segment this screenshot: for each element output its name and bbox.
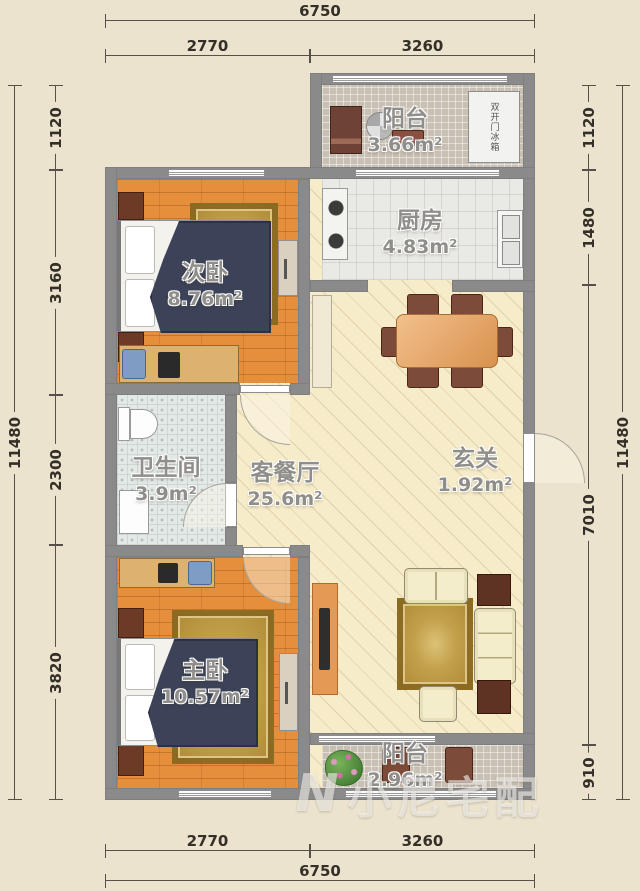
dimension-value: 3820 — [46, 647, 66, 699]
room-name: 阳台 — [382, 105, 428, 134]
dimension-left-segment: 1120 — [55, 85, 56, 170]
room-label-top-balcony: 阳台 3.66m² — [345, 100, 465, 162]
room-name: 厨房 — [397, 207, 443, 236]
room-area: 4.83m² — [383, 236, 458, 260]
sink-basin — [502, 241, 520, 265]
wardrobe-handle — [284, 259, 287, 279]
kitchen-sink — [497, 210, 523, 268]
nightstand — [118, 192, 144, 220]
dimension-value: 1480 — [579, 202, 599, 254]
window — [178, 790, 272, 798]
toilet-tank — [118, 407, 130, 441]
room-label-living-dining: 客餐厅 25.6m² — [225, 450, 345, 520]
desk-chair — [188, 561, 212, 585]
wall — [452, 280, 535, 292]
shoe-cabinet — [312, 295, 332, 388]
dimension-value: 3160 — [46, 257, 66, 309]
dimension-top-segment: 3260 — [310, 55, 535, 56]
dimension-value: 1120 — [46, 102, 66, 154]
dimension-right-segment: 1480 — [588, 170, 589, 285]
dimension-value: 910 — [579, 752, 599, 793]
refrigerator: 双开门冰箱 — [468, 91, 520, 163]
room-label-master-bedroom: 主卧 10.57m² — [150, 650, 260, 716]
sink-basin — [502, 215, 520, 239]
room-name: 玄关 — [452, 445, 498, 474]
wall — [105, 545, 243, 557]
dimension-left-overall: 11480 — [14, 85, 15, 800]
armchair — [419, 686, 457, 722]
nightstand — [118, 608, 144, 638]
nightstand — [118, 744, 144, 776]
three-seat-sofa — [474, 608, 516, 684]
living-room-rug — [397, 598, 473, 690]
wall — [290, 545, 310, 557]
two-seat-sofa — [404, 568, 468, 604]
window — [168, 169, 265, 177]
room-label-kitchen: 厨房 4.83m² — [365, 200, 475, 266]
side-table — [477, 680, 511, 714]
watermark-text: 小尼宅配 — [348, 762, 544, 826]
side-table — [477, 574, 511, 606]
room-label-second-bedroom: 次卧 8.76m² — [150, 252, 260, 318]
dimension-value: 2770 — [183, 832, 233, 850]
dimension-top-overall: 6750 — [105, 20, 535, 21]
room-name: 卫生间 — [132, 454, 201, 483]
dimension-value: 6750 — [295, 862, 345, 880]
room-label-bathroom: 卫生间 3.9m² — [112, 447, 220, 513]
dimension-top-segment: 2770 — [105, 55, 310, 56]
room-area: 8.76m² — [168, 288, 243, 312]
room-area: 1.92m² — [438, 474, 513, 498]
floor-plan-canvas: 双开门冰箱 — [0, 0, 640, 891]
room-area: 3.66m² — [368, 134, 443, 158]
dimension-right-segment: 1120 — [588, 85, 589, 170]
dimension-left-segment: 3820 — [55, 545, 56, 800]
wardrobe-handle — [285, 682, 288, 704]
master-bedroom-door — [243, 547, 290, 555]
room-name: 主卧 — [182, 657, 228, 686]
dimension-value: 7010 — [579, 489, 599, 541]
room-name: 客餐厅 — [251, 459, 320, 488]
dimension-bottom-segment: 3260 — [310, 850, 535, 851]
desk-chair — [122, 349, 146, 379]
door-swing-arc — [535, 433, 585, 483]
entry-door — [523, 433, 535, 483]
dimension-value: 2770 — [183, 37, 233, 55]
watermark: N 小尼宅配 — [295, 762, 544, 826]
master-bedroom-wardrobe — [279, 653, 298, 731]
room-area: 25.6m² — [248, 488, 323, 512]
second-bedroom-door — [240, 385, 290, 393]
laptop — [158, 352, 180, 378]
wall — [310, 73, 322, 179]
room-label-entry: 玄关 1.92m² — [430, 440, 520, 502]
wall — [290, 383, 310, 395]
dimension-right-segment: 7010 — [588, 285, 589, 745]
dimension-right-segment: 910 — [588, 745, 589, 800]
dimension-value: 11480 — [5, 411, 25, 473]
dimension-value: 2300 — [46, 444, 66, 496]
window — [332, 75, 508, 83]
refrigerator-label: 双开门冰箱 — [488, 102, 501, 152]
watermark-logo-icon: N — [290, 764, 349, 824]
room-area: 3.9m² — [135, 483, 197, 507]
dimension-value: 3260 — [398, 37, 448, 55]
dimension-value: 11480 — [613, 411, 633, 473]
dimension-left-segment: 2300 — [55, 395, 56, 545]
window — [355, 169, 500, 177]
dimension-bottom-overall: 6750 — [105, 880, 535, 881]
stove — [322, 188, 348, 260]
dimension-left-segment: 3160 — [55, 170, 56, 395]
wall — [298, 179, 310, 395]
tv — [319, 608, 330, 670]
dimension-value: 3260 — [398, 832, 448, 850]
second-bedroom-wardrobe — [278, 240, 298, 296]
dimension-value: 1120 — [579, 102, 599, 154]
wall — [310, 280, 368, 292]
dimension-right-overall: 11480 — [622, 85, 623, 800]
wall — [105, 383, 240, 395]
dimension-value: 6750 — [295, 2, 345, 20]
dining-table — [396, 314, 498, 368]
room-name: 次卧 — [182, 259, 228, 288]
dimension-bottom-segment: 2770 — [105, 850, 310, 851]
laptop — [158, 563, 178, 583]
room-area: 10.57m² — [161, 686, 249, 710]
